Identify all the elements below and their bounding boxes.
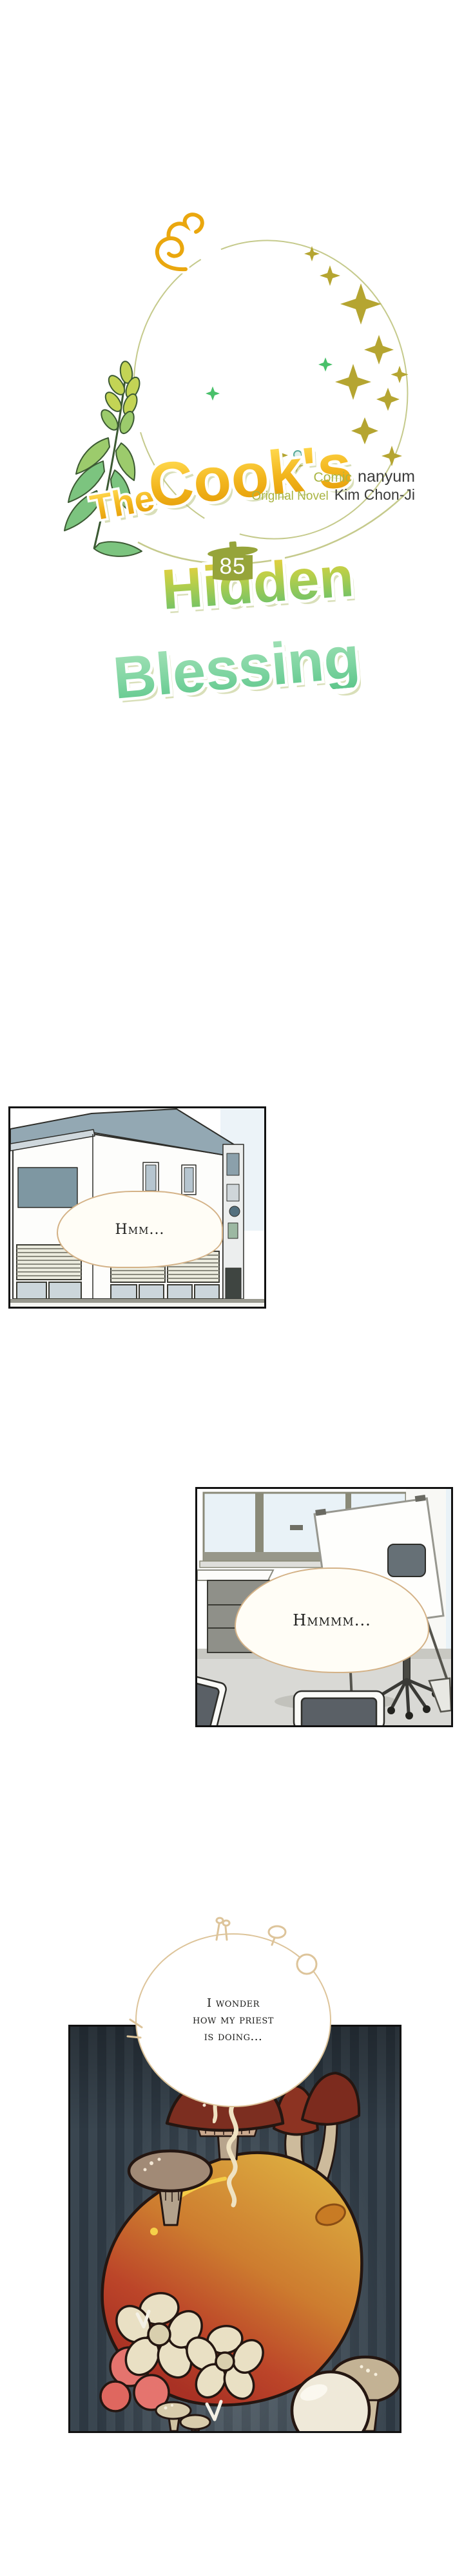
speech-text-2: Hmmmm... xyxy=(293,1611,371,1629)
speech-bubble-1: Hmm... xyxy=(57,1191,223,1268)
sidewalk xyxy=(10,1299,264,1307)
thought-bubble-tail xyxy=(213,2101,264,2217)
credit-comic-row: Comic nanyum xyxy=(251,468,415,486)
episode-badge: 85 xyxy=(206,541,260,583)
small-cream-mushrooms xyxy=(156,2402,210,2431)
novel-label: Original Novel xyxy=(251,489,328,504)
credits-block: Comic nanyum Original Novel Kim Chon-Ji xyxy=(251,468,415,504)
wheat-icon xyxy=(64,361,142,556)
thought-line-2: how my priest xyxy=(193,2012,274,2029)
annex-column xyxy=(223,1144,244,1299)
comic-label: Comic xyxy=(314,470,353,486)
panel-office-interior: Hmmmm... xyxy=(195,1487,453,1727)
steam-curl-icon xyxy=(157,214,202,269)
thought-text: I wonder how my priest is doing... xyxy=(193,1995,274,2045)
panel-street-building: Hmm... xyxy=(8,1106,266,1309)
thought-bubble: I wonder how my priest is doing... xyxy=(135,1933,331,2107)
speech-text-1: Hmm... xyxy=(115,1222,165,1238)
episode-number: 85 xyxy=(213,554,253,580)
thought-line-1: I wonder xyxy=(193,1995,274,2012)
webtoon-page: The The Cook's Cook's Hidden Hidden Bles… xyxy=(0,0,464,2576)
comic-author: nanyum xyxy=(358,468,415,486)
thought-line-3: is doing... xyxy=(193,2029,274,2045)
office-chair-back xyxy=(388,1544,425,1577)
novel-author: Kim Chon-Ji xyxy=(334,486,415,503)
title-blessing-text: Blessing xyxy=(111,628,362,708)
credit-novel-row: Original Novel Kim Chon-Ji xyxy=(251,486,415,504)
